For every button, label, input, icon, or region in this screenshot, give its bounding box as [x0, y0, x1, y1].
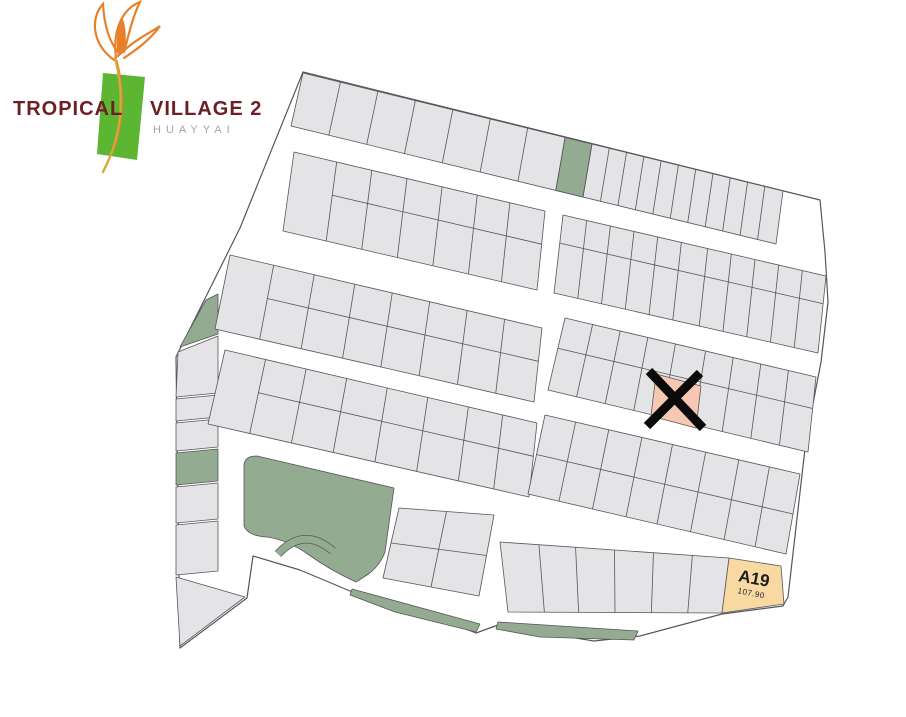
logo: TROPICAL VILLAGE 2 HUAYYAI [0, 0, 280, 185]
logo-heliconia-flower [95, 2, 160, 60]
plot-divider [615, 550, 616, 613]
logo-subtitle: HUAYYAI [153, 124, 235, 136]
site-plan-page: A19 107.90 TROPICAL VILLAGE 2 HUAYYAI [0, 0, 906, 717]
land-plot [176, 521, 218, 575]
logo-title-left: TROPICAL [13, 98, 123, 121]
green-plot [176, 449, 218, 485]
land-plot [176, 483, 218, 523]
logo-flower-icon [0, 0, 280, 185]
logo-title-right: VILLAGE 2 [150, 98, 262, 121]
